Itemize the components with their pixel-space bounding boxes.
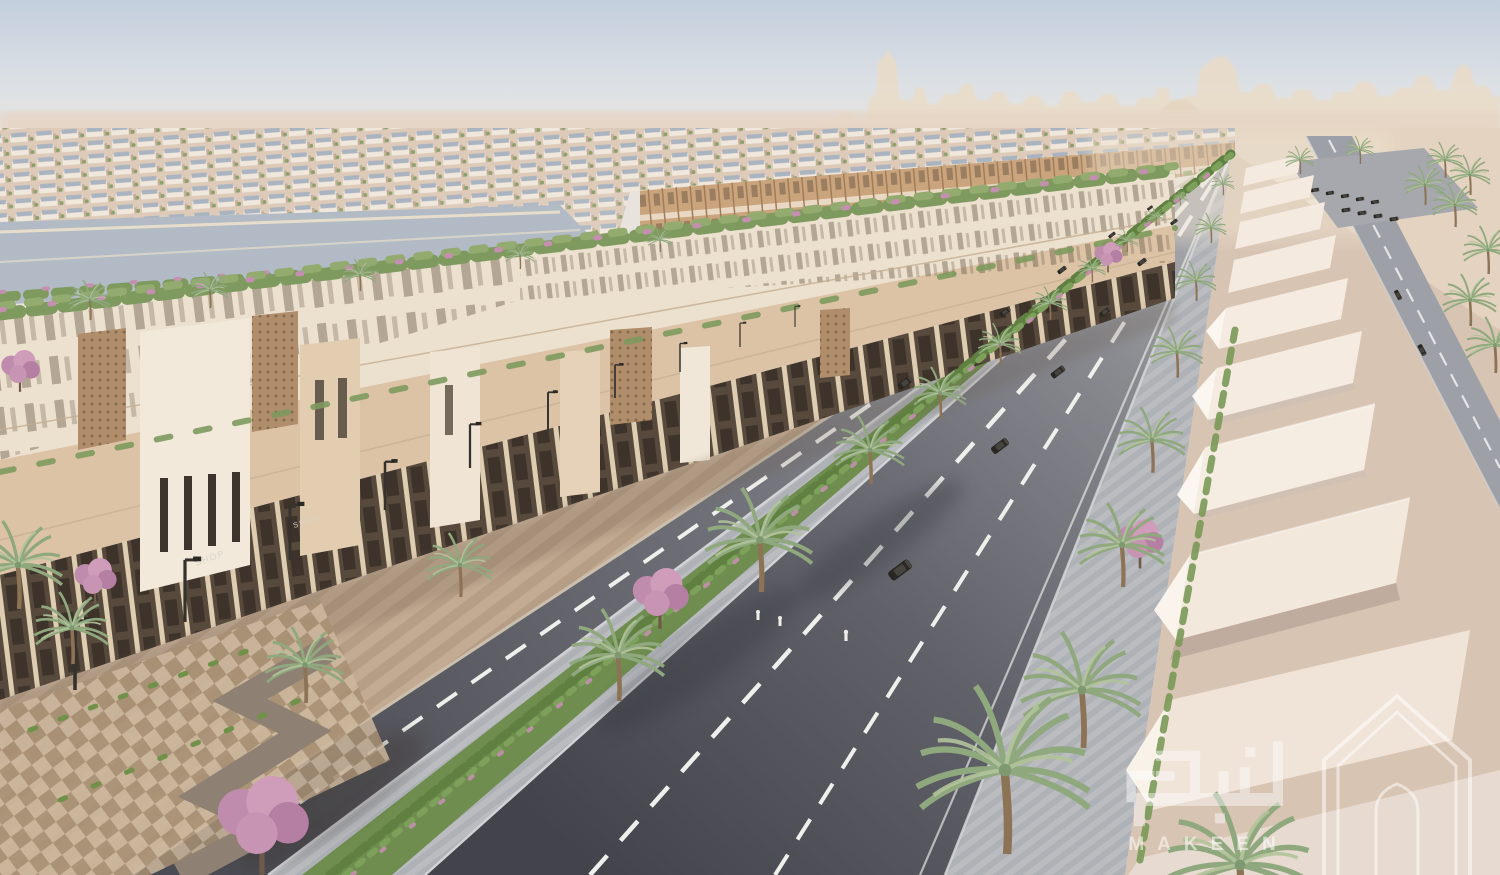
- render-canvas: SHOP SHOP: [0, 0, 1500, 875]
- architectural-render-scene: SHOP SHOP: [0, 0, 1500, 875]
